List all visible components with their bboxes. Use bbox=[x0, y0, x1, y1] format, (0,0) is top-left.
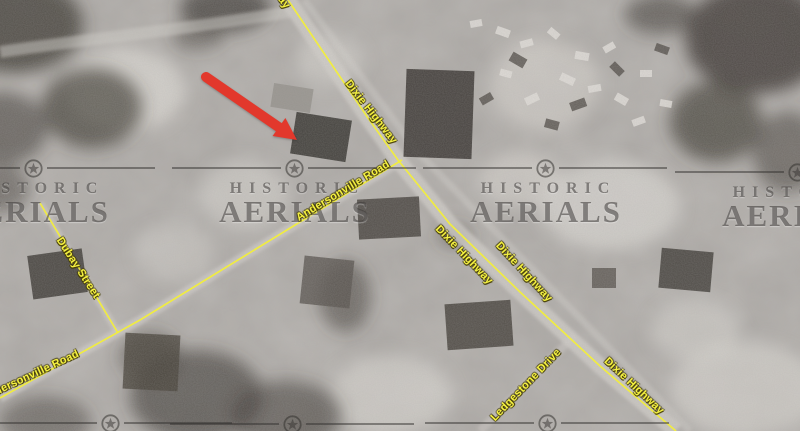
aerial-photo bbox=[0, 0, 800, 431]
aerial-map-viewport[interactable]: HISTORICAERIALSHISTORICAERIALSHISTORICAE… bbox=[0, 0, 800, 431]
